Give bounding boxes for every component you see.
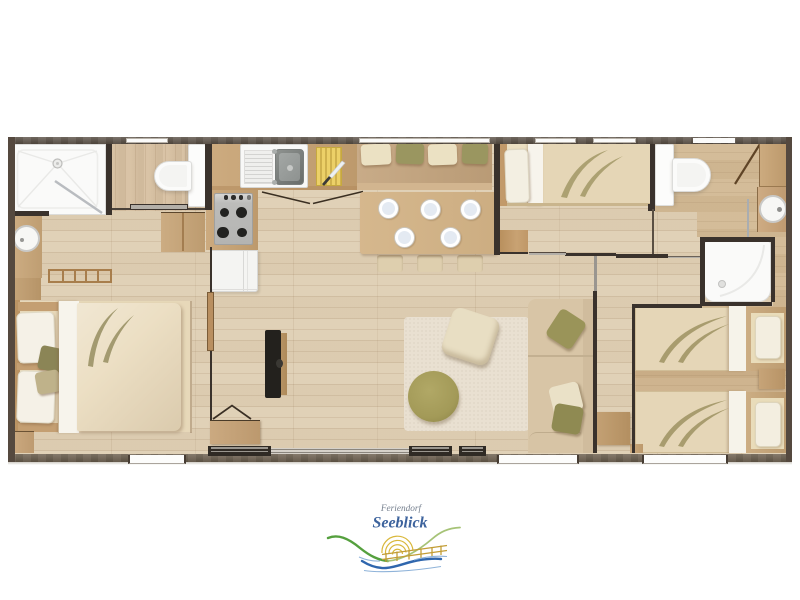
svg-text:Seeblick: Seeblick (372, 515, 427, 532)
svg-text:Feriendorf: Feriendorf (380, 503, 423, 514)
